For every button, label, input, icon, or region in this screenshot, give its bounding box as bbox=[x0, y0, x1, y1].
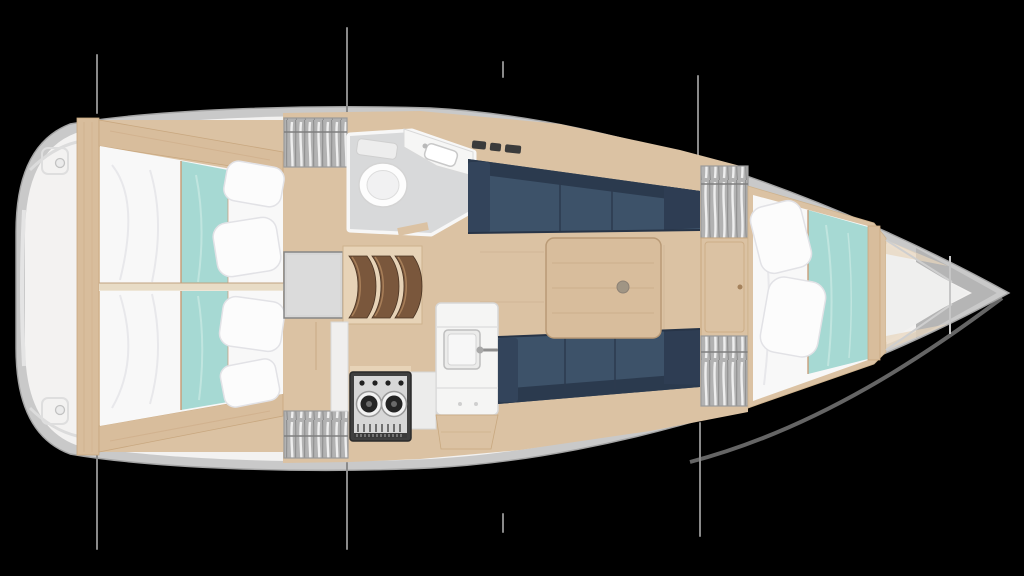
basin-faucet bbox=[423, 144, 428, 149]
berth-pillow bbox=[218, 295, 286, 353]
galley-stove bbox=[350, 372, 411, 441]
vberth-foot-trim bbox=[868, 226, 880, 360]
aft-cabin-starboard bbox=[99, 291, 290, 452]
settee-armrest bbox=[498, 338, 518, 402]
galley-worktop bbox=[411, 372, 436, 429]
stove-burner-cap bbox=[366, 401, 372, 407]
stove-knob bbox=[359, 380, 364, 385]
faucet-base bbox=[477, 347, 484, 354]
stove-knob bbox=[398, 380, 403, 385]
hanging-locker-forward-port bbox=[701, 166, 748, 238]
companionway bbox=[284, 246, 422, 324]
berth-pillow bbox=[758, 275, 828, 360]
berth-runner-teal bbox=[181, 291, 228, 410]
stove-knob bbox=[372, 380, 377, 385]
settee-end bbox=[664, 329, 700, 385]
yacht-floor-plan-stage bbox=[0, 0, 1024, 576]
latch-dot bbox=[458, 402, 462, 406]
aft-cabin-divider bbox=[99, 283, 290, 291]
stove-knob bbox=[385, 380, 390, 385]
settee-end bbox=[664, 186, 700, 230]
transom-edge-shade bbox=[22, 210, 24, 366]
divider bbox=[99, 283, 290, 291]
stove-burner-cap bbox=[391, 401, 397, 407]
hanging-locker-galley bbox=[284, 411, 348, 458]
latch-dot bbox=[474, 402, 478, 406]
galley-side-panel bbox=[331, 322, 348, 411]
shelf-cubby bbox=[490, 142, 502, 151]
shelf-cubby bbox=[472, 140, 487, 149]
deck-drain bbox=[56, 159, 65, 168]
stove-ledge bbox=[350, 366, 411, 372]
table-knob bbox=[617, 281, 629, 293]
hanging-locker-forward-starboard bbox=[701, 336, 748, 406]
yacht-deck-plan bbox=[0, 0, 1024, 576]
locker-hangers bbox=[284, 411, 348, 458]
stove-rail bbox=[354, 433, 407, 438]
head bbox=[350, 129, 473, 233]
toilet-lid bbox=[367, 171, 399, 200]
engine-hatch-top bbox=[287, 255, 340, 315]
galley-sink-basin bbox=[448, 334, 476, 365]
forward-cabin bbox=[748, 186, 886, 408]
forward-bulkhead bbox=[701, 166, 748, 406]
settee-armrest bbox=[468, 162, 490, 233]
deck-drain bbox=[56, 406, 65, 415]
salon-table bbox=[546, 238, 661, 338]
shelf-cubby bbox=[505, 144, 522, 154]
transom-bulkhead bbox=[77, 118, 99, 455]
hanging-locker-aft-port bbox=[284, 118, 347, 167]
aft-cabin-port bbox=[99, 120, 290, 285]
berth-pillow bbox=[211, 215, 283, 278]
door-handle bbox=[738, 285, 743, 290]
locker-hangers bbox=[284, 118, 347, 167]
